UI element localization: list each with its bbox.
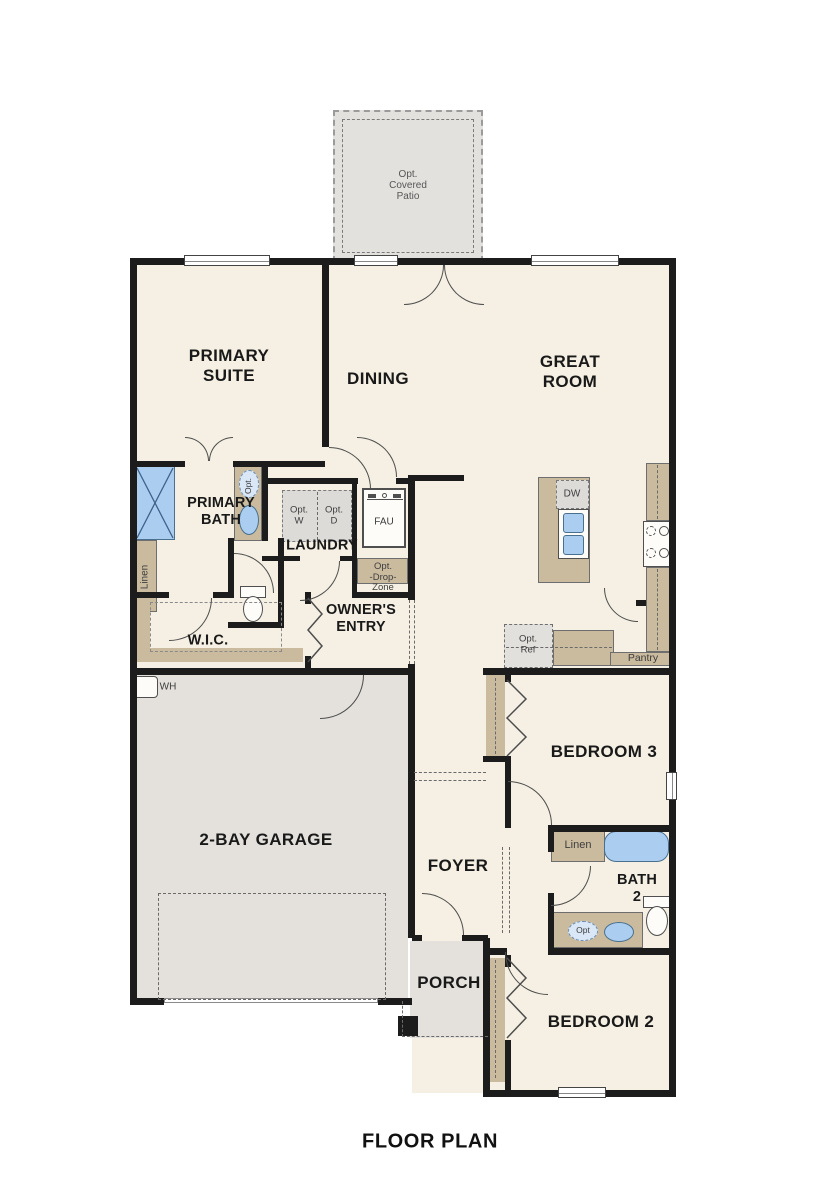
foyer-label: FOYER [428, 856, 489, 876]
primary-linen-label: Linen [139, 565, 150, 589]
bedroom2-bifold [507, 958, 526, 1038]
floor-plan-canvas: Opt. Covered Patio PRIMARY SUITE DINING … [0, 0, 833, 1202]
primary-suite-label: PRIMARY SUITE [189, 346, 270, 386]
bedroom3-label: BEDROOM 3 [551, 742, 658, 762]
owners-entry-label: OWNER'S ENTRY [326, 602, 396, 636]
wic-label: W.I.C. [188, 632, 229, 649]
primary-opt-sink-label: Opt. [244, 478, 254, 494]
great-room-label: GREAT ROOM [540, 352, 600, 392]
bath2-label: BATH 2 [617, 872, 657, 906]
drop-zone-label: Opt. -Drop- Zone [370, 562, 397, 594]
bath2-linen-label: Linen [565, 839, 592, 851]
fau-label: FAU [374, 516, 393, 527]
bedroom3-bifold [507, 680, 526, 756]
bedroom2-label: BEDROOM 2 [548, 1012, 655, 1032]
opt-dryer-label: Opt. D [325, 505, 343, 526]
water-heater-label: WH [160, 681, 177, 692]
opt-ref-label: Opt. Ref [519, 634, 537, 655]
dishwasher-label: DW [564, 488, 581, 499]
bath2-opt-sink-label: Opt [576, 926, 590, 936]
patio-label: Opt. Covered Patio [389, 169, 427, 203]
plan-title: FLOOR PLAN [362, 1131, 498, 1154]
laundry-label: LAUNDRY [286, 537, 358, 554]
opt-washer-label: Opt. W [290, 505, 308, 526]
porch-label: PORCH [417, 973, 480, 993]
dining-label: DINING [347, 369, 409, 389]
pantry-label: Pantry [628, 653, 658, 665]
garage-label: 2-BAY GARAGE [199, 830, 332, 850]
primary-bath-label: PRIMARY BATH [187, 495, 255, 529]
